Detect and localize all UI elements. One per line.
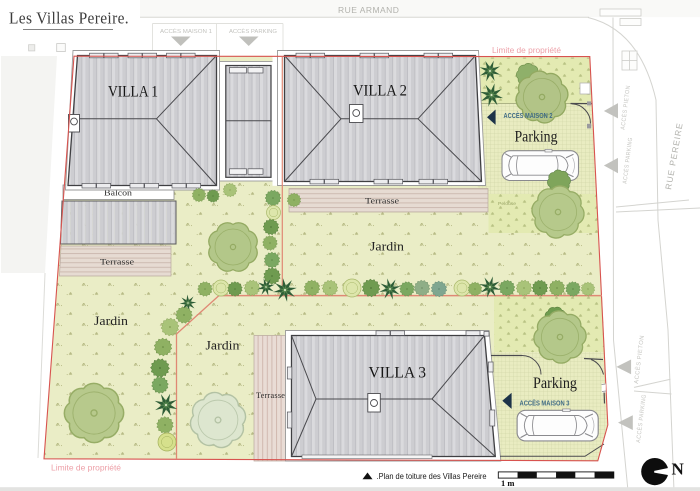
svg-text:VILLA 3: VILLA 3 (369, 365, 427, 382)
svg-text:1 m: 1 m (501, 478, 514, 488)
svg-text:Limite de propriété: Limite de propriété (492, 46, 561, 55)
svg-text:N: N (672, 460, 685, 479)
svg-text:ACCÈS MAISON 3: ACCÈS MAISON 3 (520, 398, 570, 407)
svg-text:ACCÈS PARKING: ACCÈS PARKING (229, 28, 277, 35)
svg-text:VILLA 1: VILLA 1 (108, 84, 158, 101)
svg-text:ACCÈS MAISON 2: ACCÈS MAISON 2 (504, 111, 553, 120)
svg-text:Pelouse: Pelouse (498, 201, 516, 206)
svg-text:RUE ARMAND: RUE ARMAND (338, 5, 400, 15)
svg-text:Jardin: Jardin (370, 239, 405, 254)
svg-text:Jardin: Jardin (94, 313, 129, 328)
svg-text:Limite de propriété: Limite de propriété (51, 464, 121, 473)
svg-text:Terrasse: Terrasse (100, 257, 134, 267)
svg-text:Jardin: Jardin (206, 338, 241, 353)
svg-text:Les Villas Pereire.: Les Villas Pereire. (9, 9, 129, 28)
svg-text:VILLA 2: VILLA 2 (353, 83, 407, 100)
svg-text:.Plan de toiture des Villas Pe: .Plan de toiture des Villas Pereire (377, 471, 487, 481)
svg-text:Parking: Parking (515, 129, 558, 146)
svg-text:Terrasse: Terrasse (256, 391, 285, 400)
svg-text:Parking: Parking (533, 375, 577, 392)
svg-text:ACCÈS MAISON 1: ACCÈS MAISON 1 (160, 28, 212, 35)
svg-text:Terrasse: Terrasse (365, 196, 399, 206)
